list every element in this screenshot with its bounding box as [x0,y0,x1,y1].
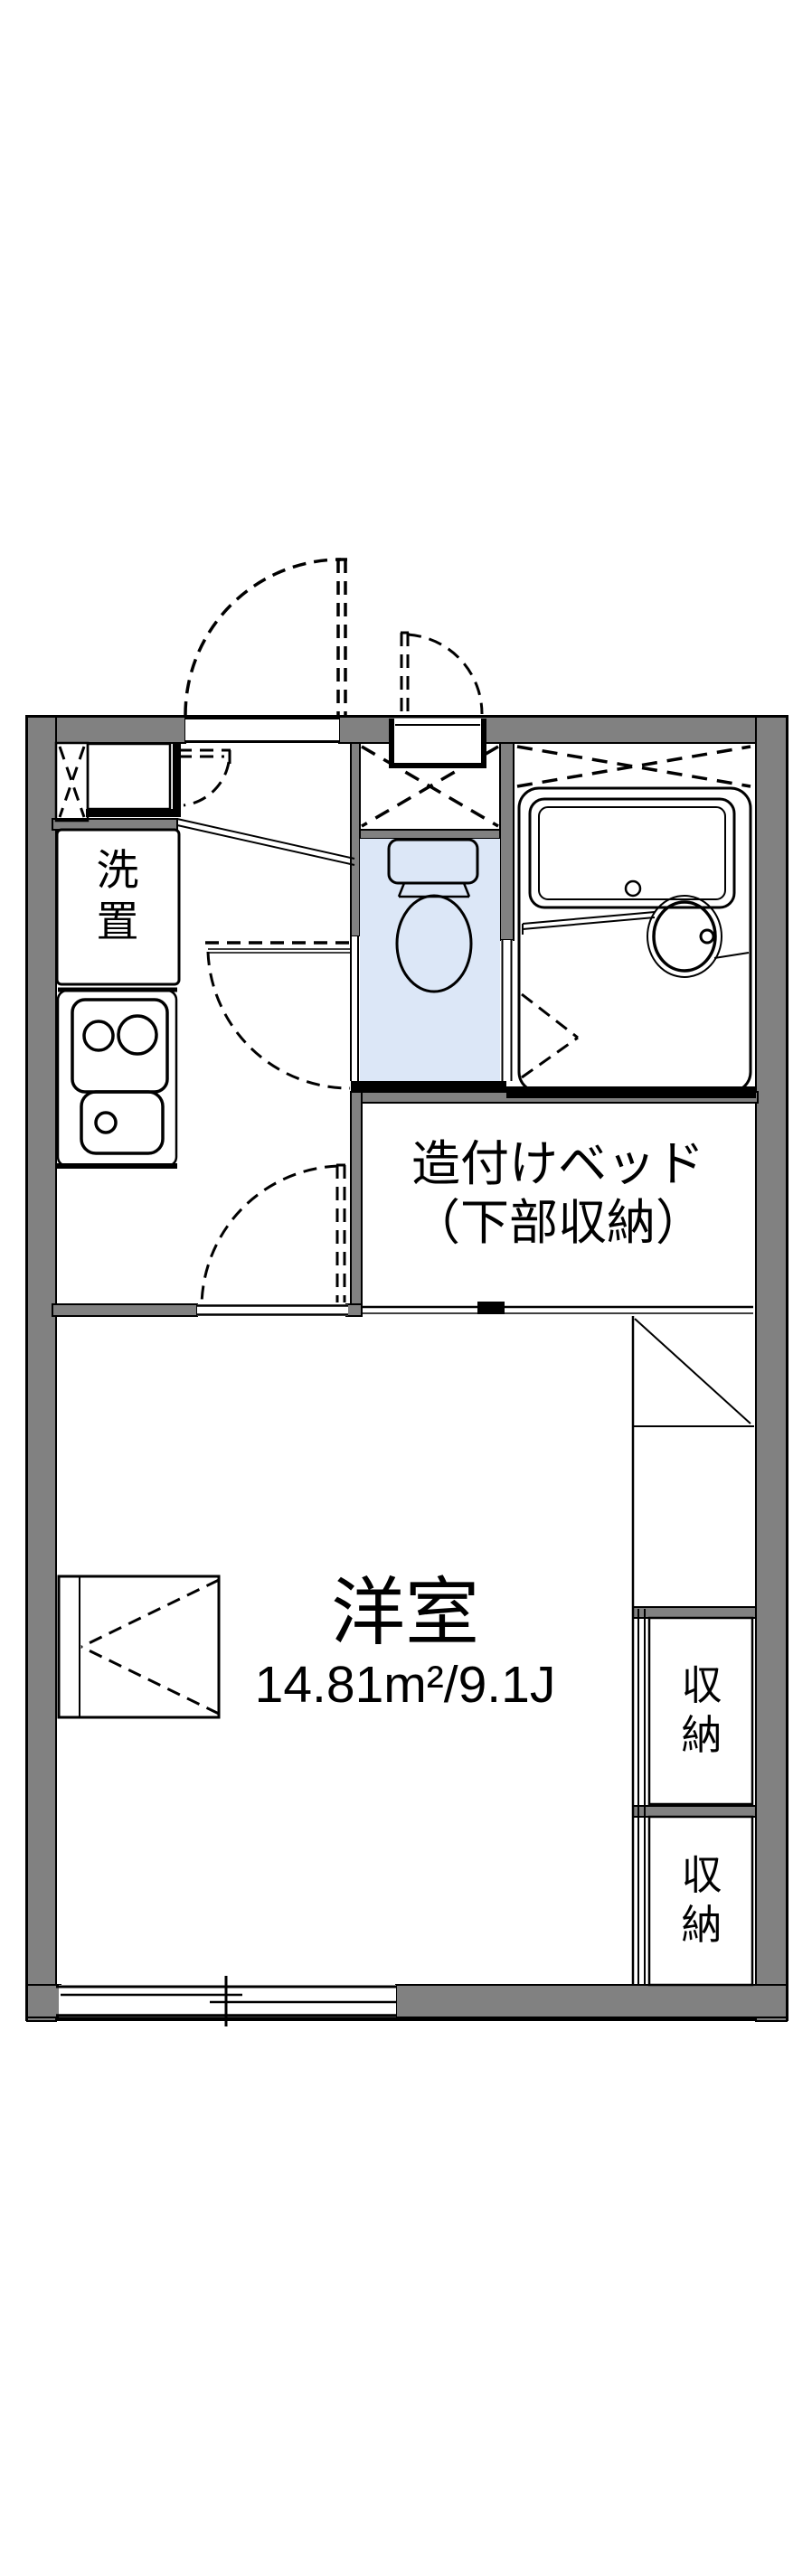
toilet-room [349,839,500,1081]
storage-lower-label: 収納 [676,1851,727,1951]
entrance-door-swing [185,559,347,715]
living-room-label: 洋室 14.81m²/9.1J [134,1575,676,1711]
entrance-door-niche [392,719,484,766]
bed-label-line1: 造付けベッド [362,1135,754,1194]
room-name: 洋室 [134,1575,676,1652]
entrance-opening [185,719,339,742]
storage-upper-label: 収納 [676,1661,727,1761]
washer-space-label: 洗置 [91,844,144,948]
built-in-bed-label: 造付けベッド （下部収納） [362,1135,754,1253]
side-door-swing [401,633,482,715]
bed-label-line2: （下部収納） [362,1194,754,1253]
floor-plan-drawing [0,0,812,2576]
room-area: 14.81m²/9.1J [134,1659,676,1711]
floor-plan: 洗置 造付けベッド （下部収納） 洋室 14.81m²/9.1J 収納 収納 [0,0,812,2576]
